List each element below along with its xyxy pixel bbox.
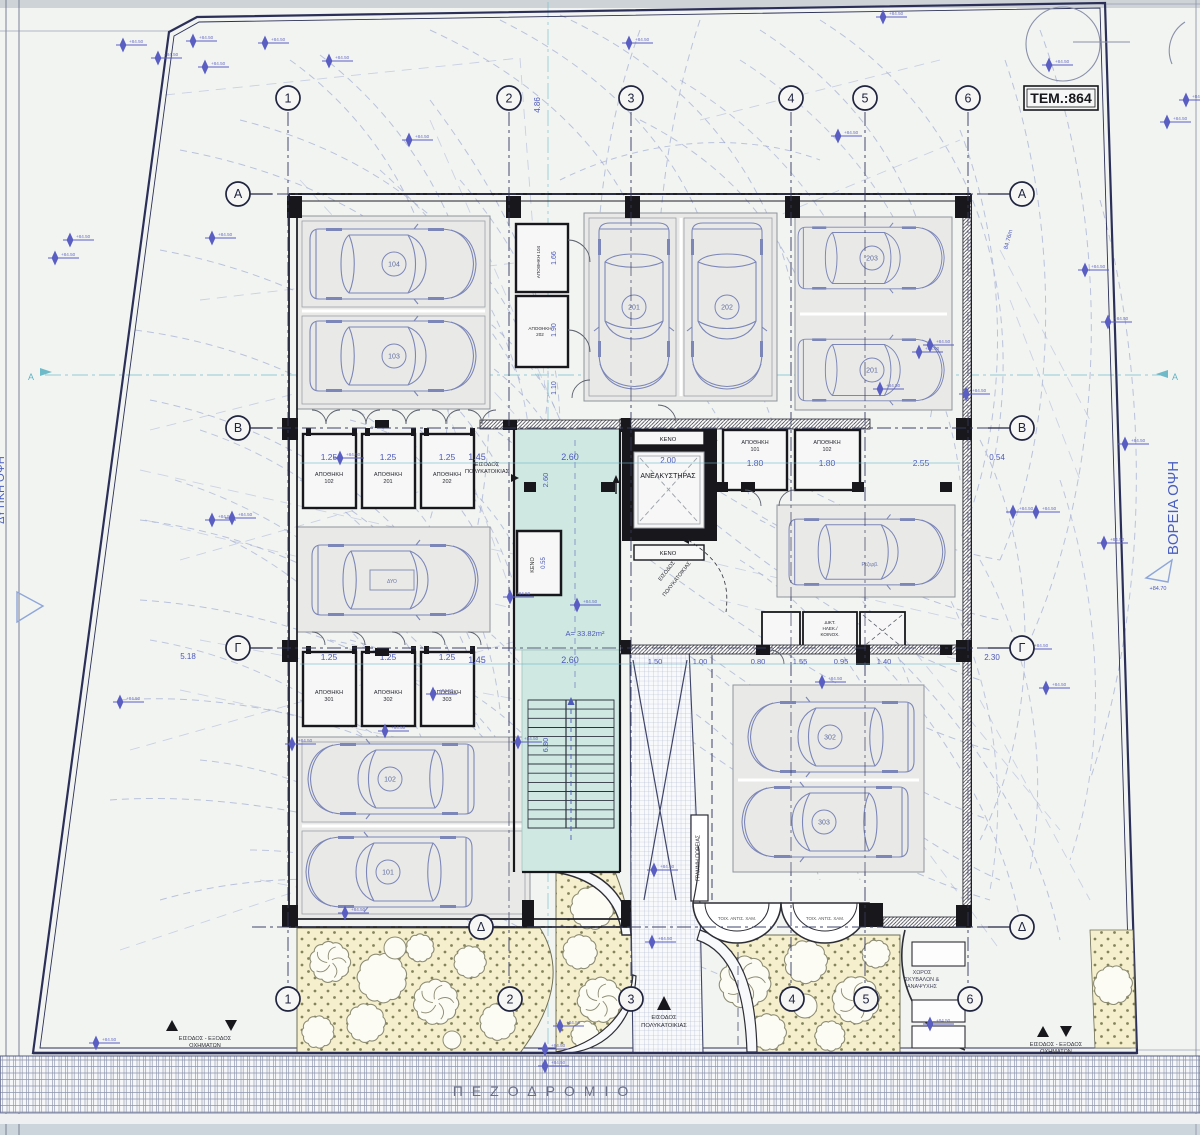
svg-text:+84.50: +84.50: [660, 864, 675, 869]
svg-text:303: 303: [442, 697, 451, 703]
svg-text:ΚΕΝΟ: ΚΕΝΟ: [660, 437, 677, 443]
svg-text:ΑΝΑΨΥΧΗΣ: ΑΝΑΨΥΧΗΣ: [907, 984, 938, 990]
svg-text:2.30: 2.30: [984, 653, 1000, 662]
svg-text:ΧΩΡΟΣ: ΧΩΡΟΣ: [913, 970, 932, 976]
svg-text:+84.50: +84.50: [551, 1060, 566, 1065]
svg-text:+84.50: +84.50: [271, 37, 286, 42]
svg-text:2: 2: [506, 92, 513, 106]
svg-text:+84.50: +84.50: [1114, 316, 1129, 321]
svg-text:+84.50: +84.50: [346, 452, 361, 457]
svg-text:+84.50: +84.50: [351, 907, 366, 912]
svg-text:202: 202: [536, 332, 544, 337]
svg-text:102: 102: [823, 447, 832, 453]
svg-text:+84.50: +84.50: [391, 725, 406, 730]
svg-text:Β: Β: [1018, 421, 1026, 435]
svg-text:1: 1: [285, 993, 292, 1007]
svg-text:Δ: Δ: [1018, 920, 1026, 934]
svg-text:1.25: 1.25: [321, 652, 338, 662]
svg-text:103: 103: [388, 353, 400, 360]
svg-text:ΕΙΣΟΔΟΣ: ΕΙΣΟΔΟΣ: [651, 1015, 677, 1021]
svg-text:+84.50: +84.50: [635, 37, 650, 42]
svg-text:+84.50: +84.50: [1042, 506, 1057, 511]
svg-text:ΑΠΟΘΗΚΗ: ΑΠΟΘΗΚΗ: [374, 690, 402, 696]
svg-text:ΔΥΟ: ΔΥΟ: [387, 579, 397, 585]
svg-text:1.10: 1.10: [551, 381, 558, 395]
svg-text:ΑΠΟΘΗΚΗ 104: ΑΠΟΘΗΚΗ 104: [536, 245, 541, 278]
svg-text:1.25: 1.25: [439, 652, 456, 662]
svg-text:Γ: Γ: [235, 641, 242, 655]
svg-text:2.60: 2.60: [541, 473, 550, 488]
svg-text:+84.50: +84.50: [199, 35, 214, 40]
svg-text:ΗΛΕΚ./: ΗΛΕΚ./: [822, 626, 838, 631]
svg-text:201: 201: [628, 304, 640, 311]
svg-text:ΕΙΣΟΔΟΣ - ΕΞΟΔΟΣ: ΕΙΣΟΔΟΣ - ΕΞΟΔΟΣ: [179, 1036, 232, 1042]
svg-text:5.18: 5.18: [180, 652, 196, 661]
svg-text:+84.50: +84.50: [1034, 643, 1049, 648]
svg-text:+84.50: +84.50: [211, 61, 226, 66]
svg-text:ΑΠΟΘΗΚΗ: ΑΠΟΘΗΚΗ: [813, 440, 840, 446]
svg-text:A: A: [1172, 372, 1178, 382]
svg-text:2.60: 2.60: [561, 655, 579, 665]
svg-text:+84.50: +84.50: [551, 1043, 566, 1048]
svg-text:+84.50: +84.50: [886, 383, 901, 388]
svg-text:ΠΕΖΟΔΡΟΜΙΟ: ΠΕΖΟΔΡΟΜΙΟ: [453, 1083, 638, 1099]
svg-text:+84.50: +84.50: [164, 52, 179, 57]
svg-text:+84.50: +84.50: [439, 688, 454, 693]
svg-text:+84.50: +84.50: [936, 339, 951, 344]
svg-text:1.50: 1.50: [648, 657, 663, 666]
svg-text:+84.50: +84.50: [566, 1020, 581, 1025]
svg-text:301: 301: [324, 697, 333, 703]
svg-text:+84.50: +84.50: [844, 130, 859, 135]
svg-text:1.45: 1.45: [468, 655, 486, 665]
svg-text:ΟΧΗΜΑΤΩΝ: ΟΧΗΜΑΤΩΝ: [1040, 1049, 1072, 1055]
svg-text:303: 303: [818, 819, 830, 826]
svg-text:+84.50: +84.50: [126, 696, 141, 701]
svg-text:201: 201: [866, 367, 878, 374]
svg-text:6: 6: [967, 993, 974, 1007]
svg-text:+84.50: +84.50: [129, 39, 144, 44]
svg-text:1.66: 1.66: [551, 251, 558, 265]
svg-text:+84.50: +84.50: [218, 514, 233, 519]
svg-text:1.25: 1.25: [439, 452, 456, 462]
svg-text:ΑΠΟΘΗΚΗ: ΑΠΟΘΗΚΗ: [741, 440, 768, 446]
svg-text:0.95: 0.95: [834, 657, 849, 666]
svg-text:1.00: 1.00: [693, 657, 708, 666]
svg-text:1.45: 1.45: [468, 452, 486, 462]
svg-text:4.86: 4.86: [533, 97, 542, 113]
svg-text:A= 33.82m²: A= 33.82m²: [566, 629, 605, 638]
svg-text:+84.50: +84.50: [889, 11, 904, 16]
svg-text:Α: Α: [234, 187, 243, 201]
svg-text:Ρεζερβ.: Ρεζερβ.: [861, 562, 878, 568]
svg-text:+84.50: +84.50: [828, 676, 843, 681]
svg-text:+84.50: +84.50: [658, 936, 673, 941]
svg-text:6: 6: [965, 92, 972, 106]
svg-text:ΑΠΟΘΗΚΗ: ΑΠΟΘΗΚΗ: [315, 472, 343, 478]
svg-text:1.55: 1.55: [793, 657, 808, 666]
svg-text:ΑΠΟΘΗΚΗ: ΑΠΟΘΗΚΗ: [374, 472, 402, 478]
svg-text:2.60: 2.60: [561, 452, 579, 462]
svg-text:ΟΧΗΜΑΤΩΝ: ΟΧΗΜΑΤΩΝ: [189, 1043, 221, 1049]
svg-text:+84.50: +84.50: [76, 234, 91, 239]
svg-text:ΤΟΙΧ. ΑΝΤΙΣ. ΧΑΜ.: ΤΟΙΧ. ΑΝΤΙΣ. ΧΑΜ.: [806, 916, 844, 921]
svg-text:101: 101: [751, 447, 760, 453]
svg-text:1: 1: [285, 92, 292, 106]
svg-text:ΤΟΙΧ. ΑΝΤΙΣ. ΧΑΜ.: ΤΟΙΧ. ΑΝΤΙΣ. ΧΑΜ.: [718, 916, 756, 921]
svg-text:ΑΠΟΘΗΚΗ: ΑΠΟΘΗΚΗ: [315, 690, 343, 696]
svg-text:+84.50: +84.50: [102, 1037, 117, 1042]
svg-text:A: A: [28, 372, 34, 382]
svg-text:5: 5: [862, 92, 869, 106]
svg-text:Α: Α: [1018, 187, 1027, 201]
svg-text:ΔΥΤΙΚΗ ΟΨΗ: ΔΥΤΙΚΗ ΟΨΗ: [0, 456, 7, 524]
svg-text:ΔΙΚΤ.: ΔΙΚΤ.: [825, 620, 836, 625]
svg-text:+84.50: +84.50: [583, 599, 598, 604]
svg-text:202: 202: [721, 304, 733, 311]
svg-text:+84.50: +84.50: [1192, 94, 1200, 99]
svg-text:3: 3: [628, 92, 635, 106]
svg-text:302: 302: [383, 697, 392, 703]
svg-text:+84.50: +84.50: [1131, 438, 1146, 443]
svg-text:ΠΟΛΥΚΑΤΟΙΚΙΑΣ: ΠΟΛΥΚΑΤΟΙΚΙΑΣ: [641, 1023, 687, 1029]
svg-text:ΣΚΥΒΑΛΩΝ &: ΣΚΥΒΑΛΩΝ &: [905, 977, 940, 983]
svg-text:3: 3: [628, 993, 635, 1007]
svg-text:4: 4: [789, 993, 796, 1007]
svg-text:104: 104: [388, 261, 400, 268]
svg-text:5: 5: [863, 993, 870, 1007]
svg-text:0.55: 0.55: [541, 557, 547, 569]
svg-text:202: 202: [442, 479, 451, 485]
svg-text:+84.50: +84.50: [415, 134, 430, 139]
svg-text:Β: Β: [234, 421, 242, 435]
svg-text:ΑΠΟΘΗΚΗ: ΑΠΟΘΗΚΗ: [528, 326, 551, 331]
svg-text:+84.70: +84.70: [1150, 586, 1167, 592]
svg-text:1.40: 1.40: [877, 657, 892, 666]
svg-text:1.25: 1.25: [321, 452, 338, 462]
svg-text:201: 201: [383, 479, 392, 485]
svg-text:2: 2: [507, 993, 514, 1007]
svg-text:+84.50: +84.50: [335, 55, 350, 60]
svg-text:+84.50: +84.50: [516, 591, 531, 596]
svg-text:ΠΟΛΥΚΑΤΟΙΚΙΑΣ: ΠΟΛΥΚΑΤΟΙΚΙΑΣ: [465, 469, 510, 475]
svg-text:+84.50: +84.50: [936, 1018, 951, 1023]
svg-text:102: 102: [324, 479, 333, 485]
svg-text:0.80: 0.80: [751, 657, 766, 666]
svg-text:4: 4: [788, 92, 795, 106]
svg-text:+84.50: +84.50: [238, 512, 253, 517]
svg-text:ΚΕΝΟ: ΚΕΝΟ: [660, 551, 677, 557]
svg-text:+84.50: +84.50: [524, 736, 539, 741]
svg-text:ΚΟΙΝΟΧ.: ΚΟΙΝΟΧ.: [820, 632, 839, 637]
svg-text:ΤΕΜ.:864: ΤΕΜ.:864: [1030, 90, 1092, 106]
svg-text:203: 203: [866, 255, 878, 262]
svg-text:+84.50: +84.50: [218, 232, 233, 237]
svg-text:2.00: 2.00: [660, 456, 676, 465]
svg-text:302: 302: [824, 734, 836, 741]
svg-text:6.80: 6.80: [541, 738, 550, 753]
svg-text:ΚΕΝΟ: ΚΕΝΟ: [530, 556, 536, 572]
svg-text:+84.50: +84.50: [1091, 264, 1106, 269]
svg-text:+84.50: +84.50: [1110, 537, 1125, 542]
svg-text:Δ: Δ: [477, 920, 485, 934]
svg-text:102: 102: [384, 776, 396, 783]
svg-text:+84.50: +84.50: [1173, 116, 1188, 121]
svg-text:+84.50: +84.50: [972, 388, 987, 393]
svg-text:+84.50: +84.50: [1019, 506, 1034, 511]
svg-text:1.25: 1.25: [380, 452, 397, 462]
svg-text:+84.50: +84.50: [298, 738, 313, 743]
svg-text:ΑΝΕΛΚΥΣΤΗΡΑΣ: ΑΝΕΛΚΥΣΤΗΡΑΣ: [640, 473, 696, 480]
svg-text:1.90: 1.90: [551, 323, 558, 337]
svg-text:ΑΠΟΘΗΚΗ: ΑΠΟΘΗΚΗ: [433, 472, 461, 478]
svg-text:+84.50: +84.50: [1052, 682, 1067, 687]
svg-text:ΒΟΡΕΙΑ ΟΨΗ: ΒΟΡΕΙΑ ΟΨΗ: [1165, 461, 1182, 555]
svg-text:+84.50: +84.50: [1055, 59, 1070, 64]
svg-text:ΕΙΣΟΔΟΣ - ΕΞΟΔΟΣ: ΕΙΣΟΔΟΣ - ΕΞΟΔΟΣ: [1030, 1042, 1083, 1048]
svg-text:+84.50: +84.50: [61, 252, 76, 257]
svg-text:Γ: Γ: [1019, 641, 1026, 655]
svg-text:101: 101: [382, 869, 394, 876]
svg-text:0.54: 0.54: [989, 453, 1005, 462]
